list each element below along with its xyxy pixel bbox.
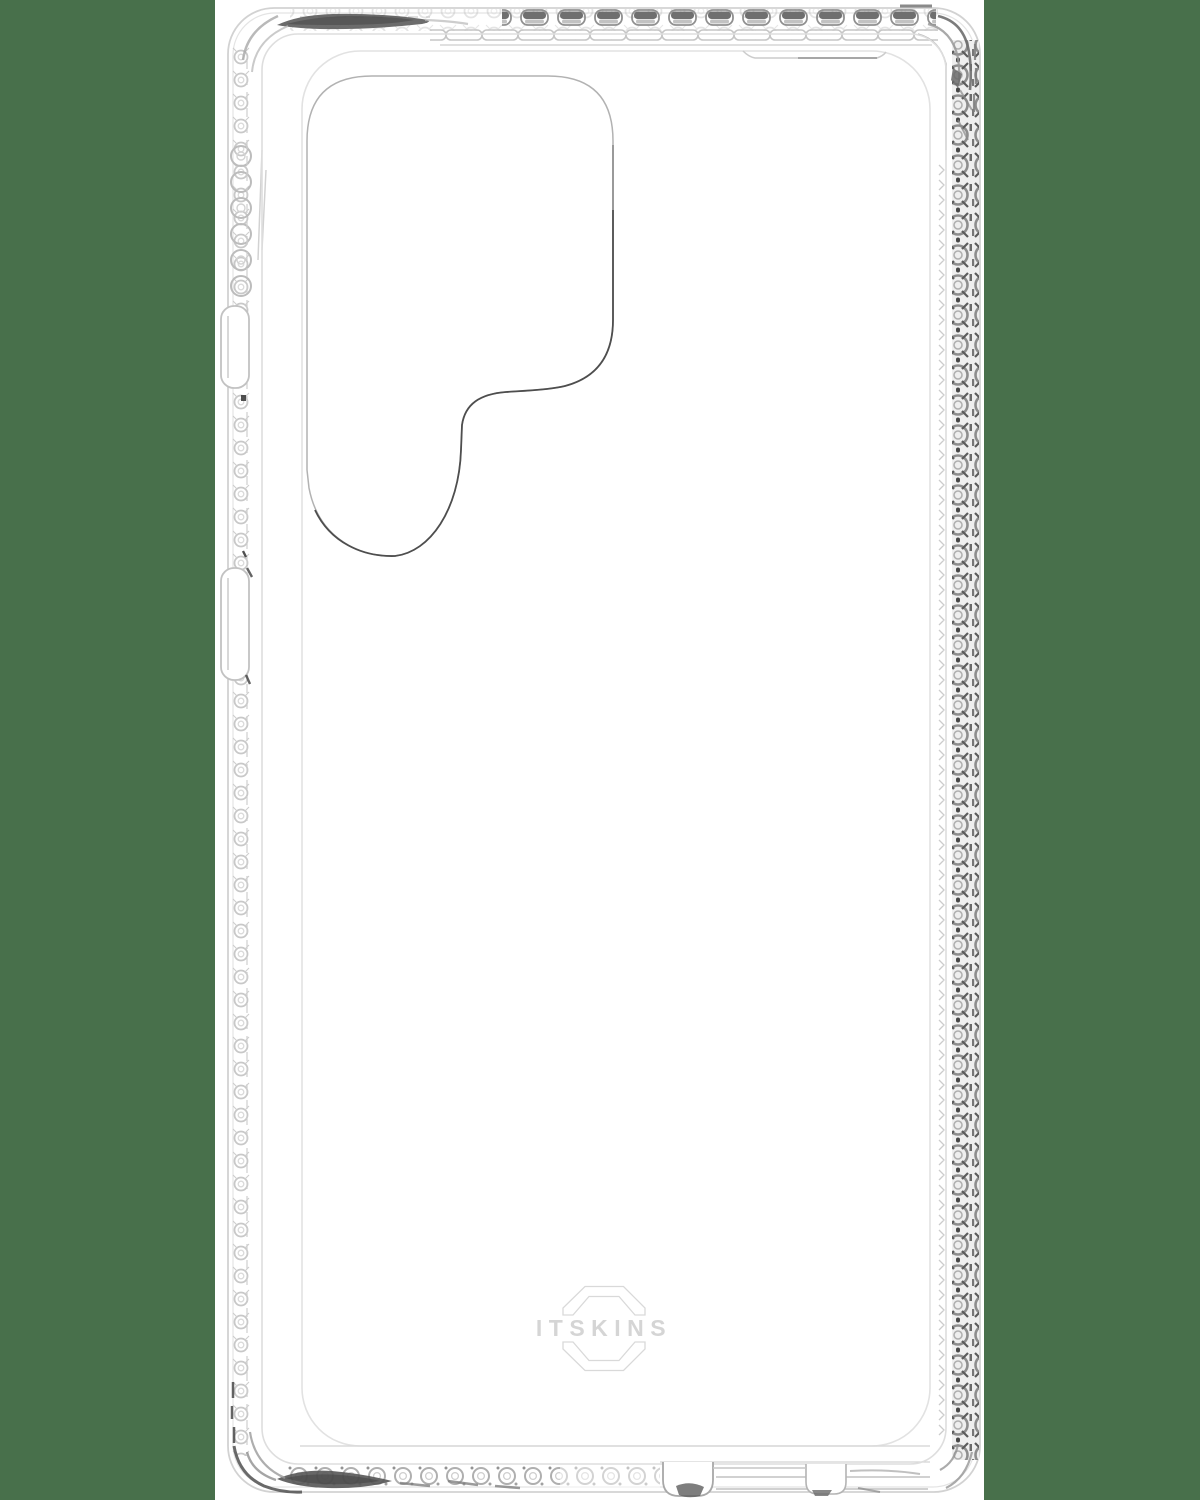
svg-text:ITSKINS: ITSKINS (536, 1315, 672, 1341)
